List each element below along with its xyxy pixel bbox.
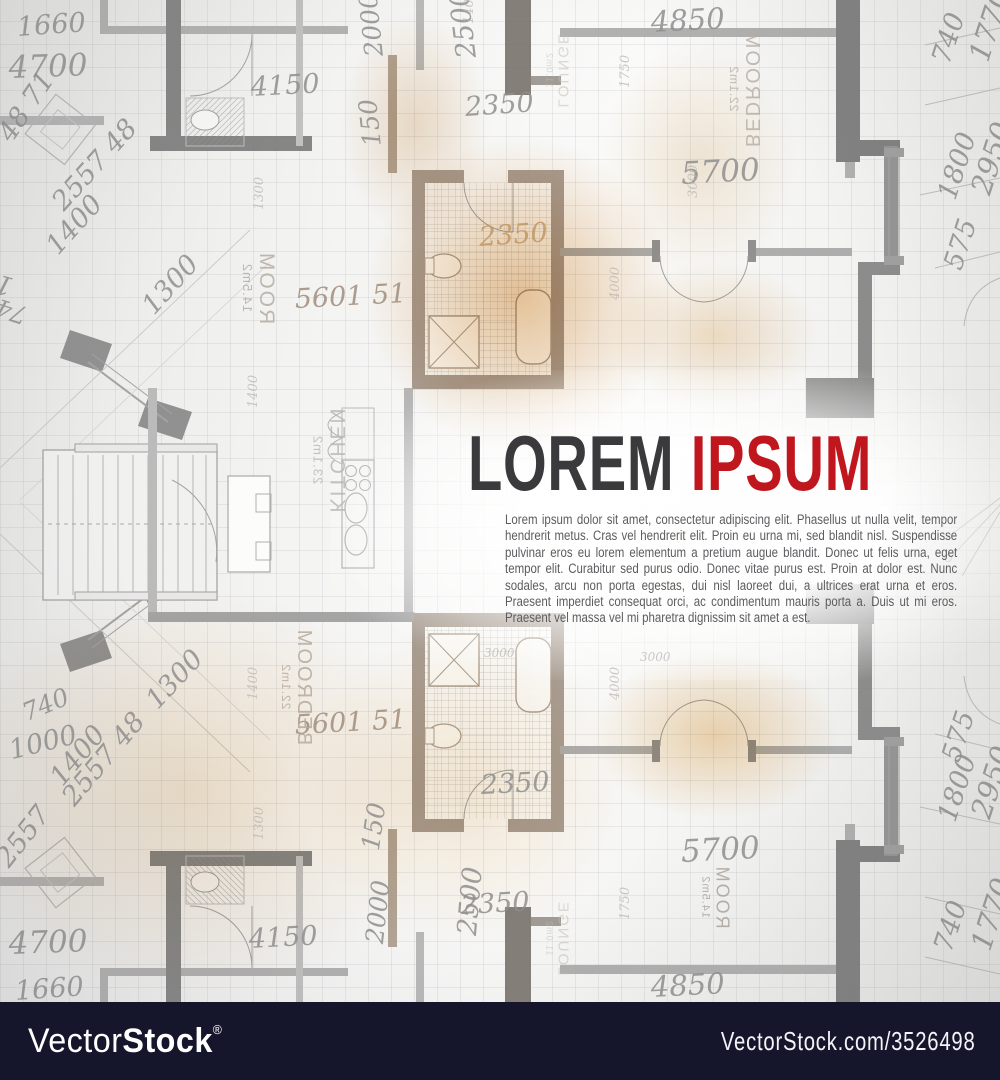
watermark-url: VectorStock.com/3526498: [721, 1026, 976, 1057]
dimension-label: 2350: [464, 87, 535, 123]
dimension-label: 3000: [484, 646, 515, 660]
dimension-label: 1300: [252, 807, 267, 840]
dimension-label: 4000: [608, 267, 623, 300]
room-label: LOUNGE11.0m2: [544, 32, 572, 107]
room-label: LOUNGE11.0m2: [544, 900, 572, 975]
logo-bold-part: Stock: [122, 1022, 212, 1060]
page-title: LOREM IPSUM: [468, 424, 872, 502]
body-text: Lorem ipsum dolor sit amet, consectetur …: [505, 512, 957, 627]
dimension-label: 5601 51: [294, 278, 407, 315]
dimension-label: 1400: [462, 0, 477, 24]
dimension-label: 2350: [478, 217, 549, 253]
dimension-label: 1750: [618, 887, 633, 920]
dimension-label: 4850: [650, 966, 725, 1004]
dimension-label: 4850: [650, 1, 725, 39]
logo-light-part: Vector: [28, 1022, 122, 1060]
dimension-label: 150: [353, 98, 387, 148]
dimension-label: 4000: [608, 667, 623, 700]
watermark-bar: VectorStock® VectorStock.com/3526498: [0, 1002, 1000, 1080]
room-label: ROOM14.5m2: [239, 251, 278, 324]
dimension-label: 3000: [686, 165, 701, 198]
dimension-label: 2000: [353, 0, 388, 58]
dimension-label: 1750: [618, 55, 633, 88]
title-word-ipsum: IPSUM: [691, 419, 872, 507]
room-label: BEDROOM22.1m2: [726, 30, 763, 147]
room-label: ROOM14.5m2: [699, 865, 732, 929]
registered-mark: ®: [213, 1022, 223, 1037]
dimension-label: 2350: [480, 766, 550, 801]
dimension-label: 3000: [640, 650, 671, 664]
dimension-label: 4150: [250, 68, 320, 103]
dimension-label: 1400: [246, 667, 261, 700]
room-label: BEDROOM22.1m2: [278, 628, 315, 745]
dimension-label: 4700: [8, 923, 88, 962]
dimension-label: 1660: [16, 7, 87, 43]
room-label: KITCHEN23.1m2: [310, 406, 349, 512]
dimension-label: 4150: [248, 920, 318, 955]
dimension-label: 2350: [460, 886, 530, 921]
title-word-lorem: LOREM: [468, 419, 674, 507]
dimension-label: 1300: [252, 177, 267, 210]
dimension-label: 1400: [246, 375, 261, 408]
stock-image-preview: 1660470048 712557 4814001000740130041502…: [0, 0, 1000, 1080]
vectorstock-logo: VectorStock®: [28, 1022, 222, 1061]
